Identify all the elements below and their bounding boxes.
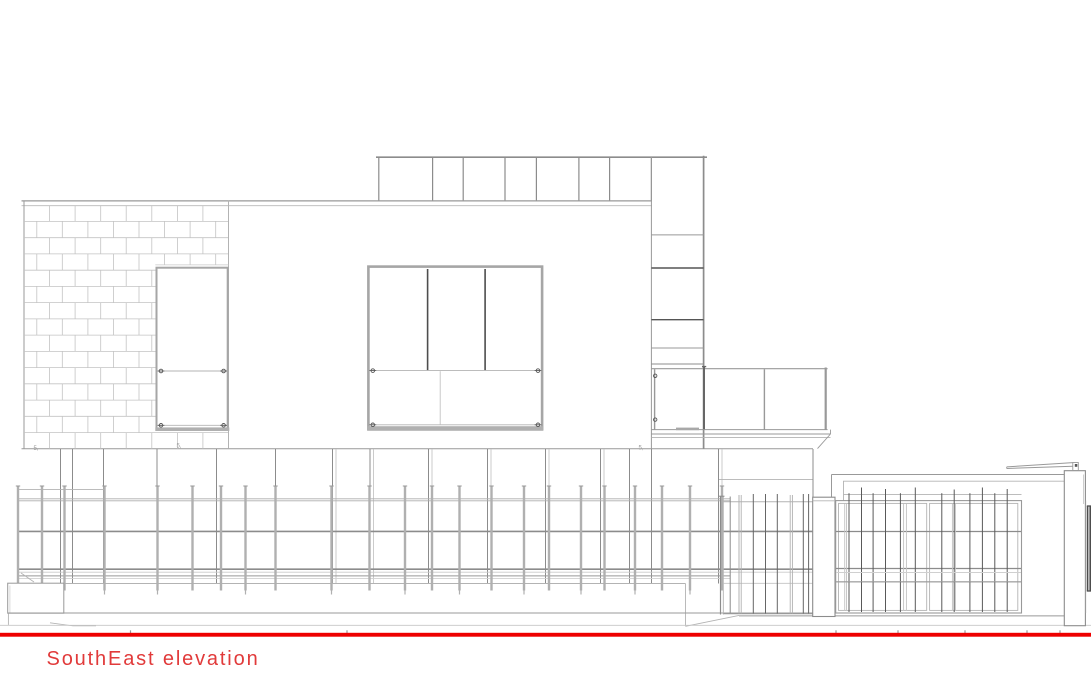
svg-text:5,: 5, [639, 446, 644, 452]
svg-text:SouthEast elevation: SouthEast elevation [47, 648, 260, 670]
svg-text:5,: 5, [34, 446, 39, 452]
svg-text:5,: 5, [177, 444, 182, 450]
